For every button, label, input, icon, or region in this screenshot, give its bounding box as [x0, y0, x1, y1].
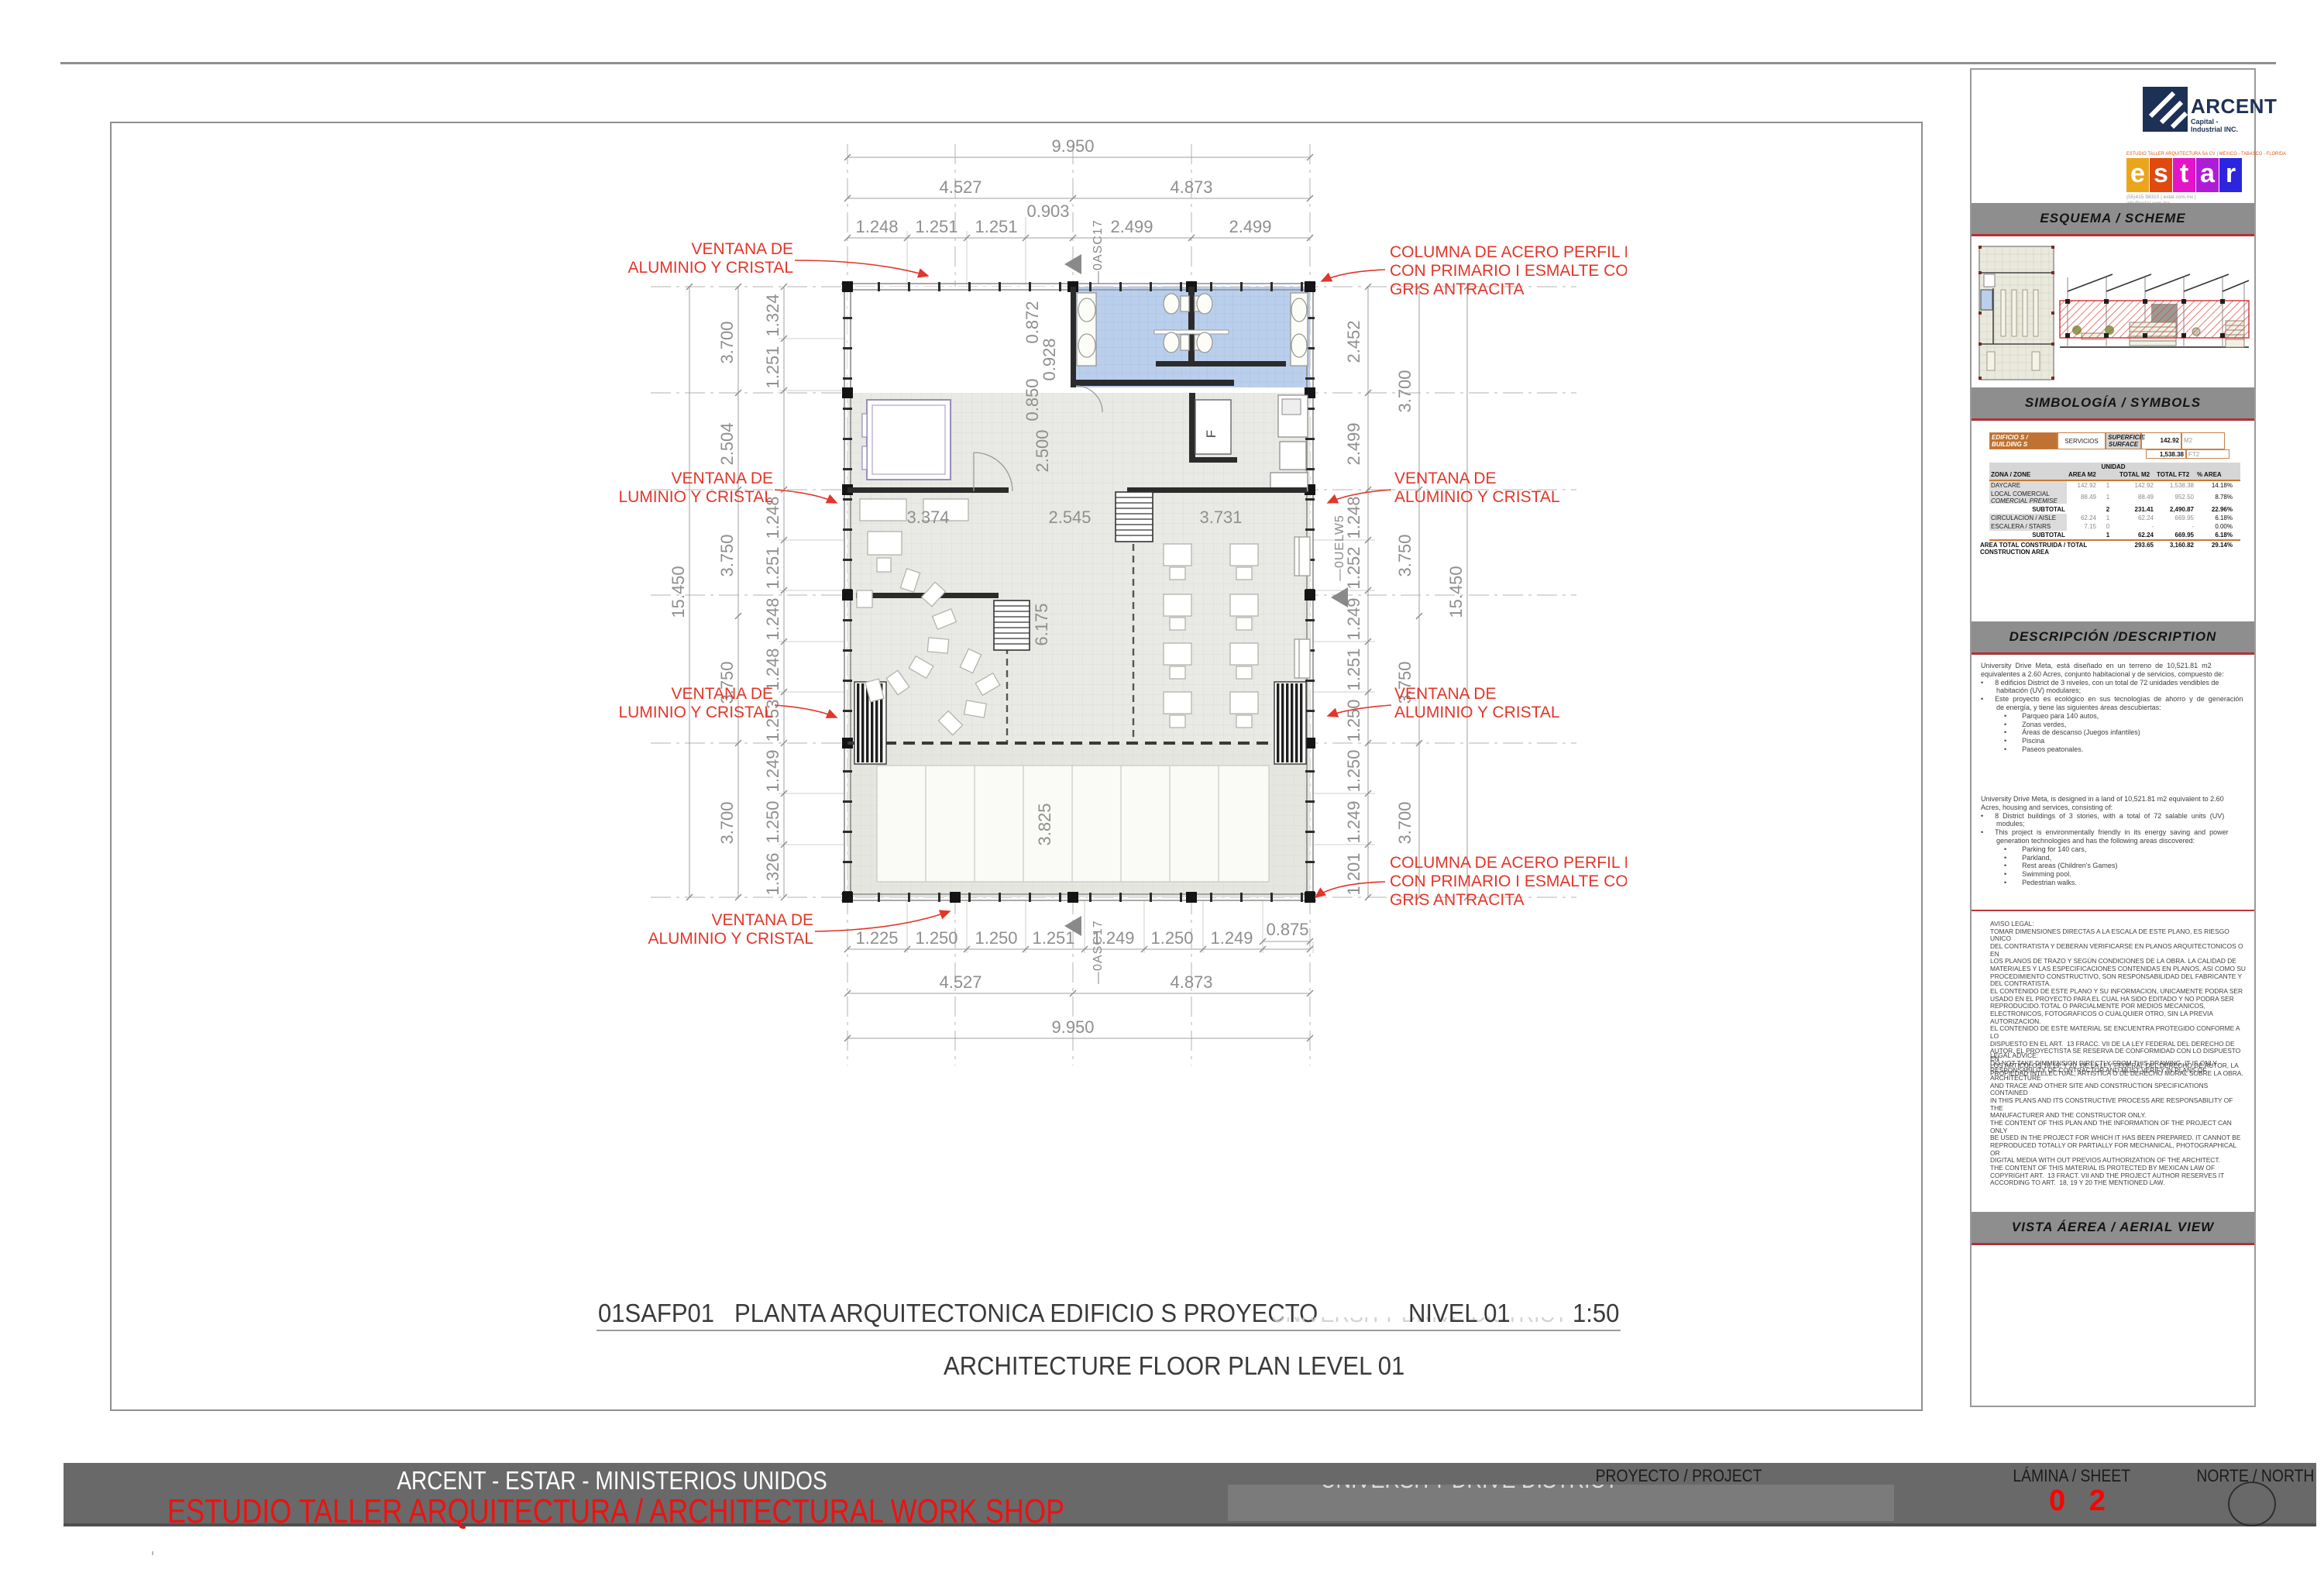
col-area: AREA M2 — [2067, 470, 2098, 480]
col-unidad: UNIDAD — [2090, 463, 2137, 470]
svg-text:4.873: 4.873 — [1170, 177, 1212, 197]
area-table: EDIFICIO S / BUILDING S SERVICIOS SUPERF… — [1989, 432, 2240, 550]
elevator — [862, 400, 951, 480]
footer-titles: ARCENT - ESTAR - MINISTERIOS UNIDOS ESTU… — [70, 1466, 1154, 1531]
svg-text:VENTANA DE: VENTANA DE — [712, 911, 813, 929]
estar-letter-blocks: e s t a r — [2126, 158, 2250, 192]
svg-text:1.248: 1.248 — [1344, 496, 1363, 539]
svg-text:3.750: 3.750 — [717, 534, 737, 576]
svg-text:VENTANA DE: VENTANA DE — [1394, 470, 1496, 487]
drawing-scale: 1:50 — [1573, 1299, 1619, 1328]
estar-logo: ESTUDIO TALLER ARQUITECTURA SA CV | MÉXI… — [2126, 152, 2250, 207]
svg-text:0.903: 0.903 — [1026, 201, 1069, 221]
estar-letter: t — [2173, 158, 2195, 192]
footer-company-line: ARCENT - ESTAR - MINISTERIOS UNIDOS — [151, 1466, 1073, 1495]
surface-ft2: 1,538.38 — [2146, 449, 2186, 459]
surface-m2: 142.92 — [2141, 432, 2181, 449]
col-total-ft2: TOTAL FT2 — [2155, 470, 2195, 480]
title-underline — [596, 1330, 1621, 1331]
svg-text:1.251: 1.251 — [975, 217, 1017, 236]
svg-text:3.700: 3.700 — [1395, 801, 1415, 844]
description-en: University Drive Meta, is designed in a … — [1981, 795, 2247, 887]
svg-text:15.450: 15.450 — [1446, 566, 1466, 618]
svg-text:1.251: 1.251 — [763, 346, 782, 388]
stairs-lower — [994, 601, 1030, 650]
legal-notice-en: LEGAL ADVICE: DO NOT TAKE DIMMENSION DIR… — [1990, 1052, 2246, 1187]
svg-text:9.950: 9.950 — [1051, 1017, 1094, 1037]
title-block-panel: ARCENT Capital - Industrial INC. ESTUDIO… — [1970, 68, 2256, 1407]
svg-text:1.251: 1.251 — [915, 217, 957, 236]
svg-text:VENTANA DE: VENTANA DE — [672, 685, 773, 703]
drawing-level: NIVEL 01 — [1408, 1299, 1511, 1328]
svg-text:2.545: 2.545 — [1048, 508, 1091, 527]
svg-text:1.252: 1.252 — [1344, 546, 1363, 589]
drawing-title-es: PLANTA ARQUITECTONICA EDIFICIO S PROYECT… — [734, 1299, 1318, 1328]
svg-text:3.825: 3.825 — [1035, 803, 1054, 845]
north-indicator — [2228, 1482, 2276, 1526]
description-es: University Drive Meta, está diseñado en … — [1981, 662, 2247, 754]
svg-text:0.872: 0.872 — [1023, 301, 1042, 343]
svg-text:1.250: 1.250 — [763, 800, 782, 843]
svg-text:GRIS ANTRACITA: GRIS ANTRACITA — [1390, 891, 1524, 909]
footer-studio-line: ESTUDIO TALLER ARQUITECTURA / ARCHITECTU… — [167, 1492, 1057, 1531]
svg-text:0.850: 0.850 — [1023, 378, 1042, 421]
project-label: PROYECTO / PROJECT — [1596, 1466, 1762, 1486]
project-value-box: UNIVERSITY DRIVE DISTRICT — [1228, 1485, 1894, 1521]
table-total-row: AREA TOTAL CONSTRUIDA / TOTAL CONSTRUCTI… — [1989, 541, 2240, 550]
svg-text:CON PRIMARIO I ESMALTE COLOR: CON PRIMARIO I ESMALTE COLOR — [1390, 262, 1627, 280]
floor-plan: F — [620, 101, 1627, 1310]
svg-text:3.374: 3.374 — [906, 508, 949, 527]
svg-text:3.700: 3.700 — [717, 801, 737, 844]
svg-text:ALUMINIO Y CRISTAL: ALUMINIO Y CRISTAL — [648, 930, 813, 948]
svg-text:2.499: 2.499 — [1344, 422, 1363, 465]
svg-text:0.928: 0.928 — [1040, 338, 1059, 380]
fridge-label: F — [1204, 430, 1219, 438]
drawing-title-en: ARCHITECTURE FLOOR PLAN LEVEL 01 — [944, 1351, 1404, 1381]
svg-text:0.875: 0.875 — [1266, 920, 1308, 939]
col-zone: ZONA / ZONE — [1989, 470, 2067, 480]
table-row: DAYCARE 142.92 1 142.92 1,538.38 14.18% — [1989, 481, 2240, 490]
svg-text:COLUMNA DE ACERO PERFIL HSS: COLUMNA DE ACERO PERFIL HSS — [1390, 854, 1627, 872]
svg-text:1.249: 1.249 — [1344, 597, 1363, 640]
estar-letter: r — [2219, 158, 2242, 192]
col-total-m2: TOTAL M2 — [2118, 470, 2155, 480]
estar-letter: a — [2196, 158, 2219, 192]
section-aerial-header: VISTA ÁEREA / AERIAL VIEW — [1972, 1212, 2254, 1245]
svg-text:2.452: 2.452 — [1344, 320, 1363, 363]
svg-text:VENTANA DE: VENTANA DE — [692, 240, 793, 258]
svg-text:4.873: 4.873 — [1170, 972, 1212, 992]
sheet-code: 01SAFP01 — [598, 1299, 714, 1328]
svg-text:COLUMNA DE ACERO PERFIL HSS: COLUMNA DE ACERO PERFIL HSS — [1390, 243, 1627, 261]
floor-finishes — [847, 287, 1310, 897]
scheme-elevation-thumb — [2058, 260, 2250, 364]
svg-text:1.250: 1.250 — [1344, 699, 1363, 742]
svg-text:3.731: 3.731 — [1199, 508, 1242, 527]
project-value: UNIVERSITY DRIVE DISTRICT — [1321, 1485, 1837, 1494]
svg-text:1.225: 1.225 — [855, 928, 898, 948]
svg-text:3.750: 3.750 — [1395, 534, 1415, 576]
svg-text:1.326: 1.326 — [763, 852, 782, 895]
arcent-tagline: Capital - Industrial INC. — [2191, 118, 2248, 133]
sheet-label: LÁMINA / SHEET — [2013, 1466, 2130, 1486]
arcent-name: ARCENT — [2191, 96, 2277, 116]
svg-text:1.251: 1.251 — [763, 546, 782, 589]
table-row-subtotal: SUBTOTAL 1 62.24 669.95 6.18% — [1989, 531, 2240, 541]
arcent-logo: ARCENT Capital - Industrial INC. — [2123, 84, 2248, 139]
table-row: ESCALERA / STAIRS 7.15 0 - - 0.00% — [1989, 522, 2240, 531]
surface-label: SUPERFICIE SURFACE — [2106, 432, 2141, 449]
svg-text:ALUMINIO Y CRISTAL: ALUMINIO Y CRISTAL — [1394, 704, 1560, 721]
section-symbols-header: SIMBOLOGÍA / SYMBOLS — [1972, 387, 2254, 421]
svg-text:15.450: 15.450 — [669, 566, 688, 618]
table-row: LOCAL COMERCIAL COMERCIAL PREMISE 88.49 … — [1989, 490, 2240, 505]
svg-text:1.249: 1.249 — [1210, 928, 1253, 948]
svg-text:6.175: 6.175 — [1032, 603, 1051, 645]
svg-text:4.527: 4.527 — [939, 972, 982, 992]
svg-text:1.324: 1.324 — [763, 294, 782, 336]
building-type: SERVICIOS — [2058, 432, 2106, 449]
col-pct: % AREA — [2195, 470, 2234, 480]
svg-text:1.250: 1.250 — [915, 928, 957, 948]
estar-letter: s — [2150, 158, 2172, 192]
table-row-subtotal: SUBTOTAL 2 231.41 2,490.87 22.96% — [1989, 505, 2240, 514]
svg-text:9.950: 9.950 — [1051, 136, 1094, 156]
svg-text:1.251: 1.251 — [1344, 648, 1363, 690]
svg-text:1.251: 1.251 — [1032, 928, 1074, 948]
stray-mark — [152, 1551, 153, 1555]
svg-text:1.249: 1.249 — [1092, 928, 1134, 948]
surface-ft2-unit: FT2 — [2186, 449, 2229, 459]
svg-text:—0ASC17: —0ASC17 — [1092, 219, 1105, 284]
drawing-sheet: F — [0, 0, 2324, 1590]
sheet-number: 0 2 — [2049, 1485, 2113, 1518]
svg-text:2.499: 2.499 — [1229, 217, 1271, 236]
svg-text:1.249: 1.249 — [1344, 800, 1363, 843]
svg-text:VENTANA DE: VENTANA DE — [672, 470, 773, 487]
section-description-header: DESCRIPCIÓN /DESCRIPTION — [1972, 621, 2254, 655]
svg-text:1.248: 1.248 — [855, 217, 898, 236]
svg-text:2.499: 2.499 — [1110, 217, 1153, 236]
svg-text:1.249: 1.249 — [763, 749, 782, 792]
surface-m2-unit: M2 — [2181, 432, 2225, 449]
svg-text:3.700: 3.700 — [1395, 370, 1415, 412]
svg-text:1.250: 1.250 — [1344, 749, 1363, 792]
table-row: CIRCULACION / AISLE 62.24 1 62.24 669.95… — [1989, 514, 2240, 522]
svg-text:1.248: 1.248 — [763, 597, 782, 640]
svg-text:ALUMINIO Y CRISTAL: ALUMINIO Y CRISTAL — [627, 259, 793, 277]
svg-text:4.527: 4.527 — [939, 177, 982, 197]
estar-topline: ESTUDIO TALLER ARQUITECTURA SA CV | MÉXI… — [2126, 152, 2240, 157]
top-rule — [60, 62, 2276, 64]
svg-text:VENTANA DE: VENTANA DE — [1394, 685, 1496, 703]
svg-text:ALUMINIO Y CRISTAL: ALUMINIO Y CRISTAL — [1394, 488, 1560, 506]
scheme-plan-thumb — [1978, 245, 2055, 381]
svg-text:GRIS ANTRACITA: GRIS ANTRACITA — [1390, 280, 1524, 298]
svg-text:ALUMINIO Y CRISTAL: ALUMINIO Y CRISTAL — [620, 488, 773, 506]
estar-letter: e — [2126, 158, 2149, 192]
svg-text:3.700: 3.700 — [717, 321, 737, 363]
svg-text:ALUMINIO Y CRISTAL: ALUMINIO Y CRISTAL — [620, 704, 773, 721]
svg-text:CON PRIMARIO I ESMALTE COLOR: CON PRIMARIO I ESMALTE COLOR — [1390, 872, 1627, 890]
svg-text:2.500: 2.500 — [1033, 429, 1052, 472]
arcent-logo-icon — [2143, 87, 2188, 132]
legal-divider — [1972, 910, 2254, 911]
svg-text:2.504: 2.504 — [717, 422, 737, 465]
svg-text:1.250: 1.250 — [975, 928, 1017, 948]
svg-text:1.250: 1.250 — [1150, 928, 1193, 948]
section-scheme-header: ESQUEMA / SCHEME — [1972, 203, 2254, 236]
svg-text:1.201: 1.201 — [1344, 852, 1363, 895]
building-cell: EDIFICIO S / BUILDING S — [1989, 432, 2058, 449]
stairs-upper — [1116, 492, 1153, 542]
